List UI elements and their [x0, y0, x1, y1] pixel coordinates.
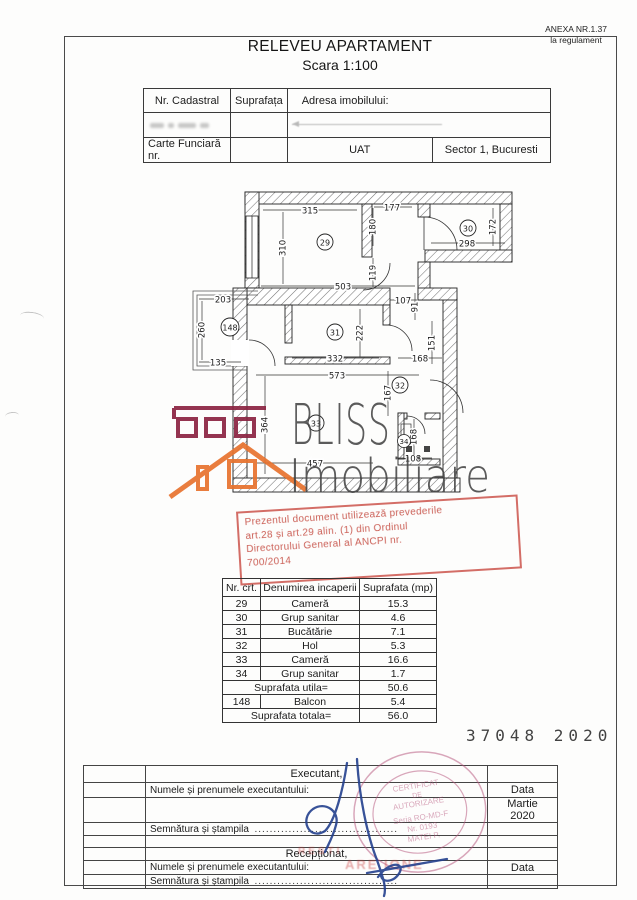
- suprafata-value-cell: [231, 113, 288, 138]
- watermark-bliss: BLISS: [291, 398, 391, 454]
- room-nr: 32: [223, 639, 261, 653]
- page-title: RELEVEU APARTAMENT: [64, 38, 616, 56]
- svg-text:573: 573: [329, 372, 345, 382]
- total-label: Suprafata totala=: [223, 709, 360, 723]
- room-name: Grup sanitar: [261, 667, 360, 681]
- util-value: 50.6: [360, 681, 437, 695]
- scan-speck: [19, 310, 44, 323]
- room-name: Balcon: [261, 695, 360, 709]
- svg-text:315: 315: [302, 207, 318, 217]
- empty-cell: [84, 766, 146, 783]
- table-row: 32Hol5.3: [223, 639, 437, 653]
- header-nr-cadastral: Nr. Cadastral: [144, 89, 231, 113]
- header-suprafata: Suprafața: [231, 89, 288, 113]
- svg-text:168: 168: [412, 355, 428, 365]
- svg-text:107: 107: [395, 297, 411, 307]
- address-redacted-mark: [292, 121, 442, 129]
- svg-text:31: 31: [330, 329, 340, 338]
- logo-house-windows: [174, 408, 266, 436]
- svg-text:260: 260: [198, 322, 208, 338]
- empty-cell: [84, 798, 146, 823]
- room-area: 1.7: [360, 667, 437, 681]
- subtotal-row: Suprafata utila=50.6: [223, 681, 437, 695]
- svg-text:151: 151: [428, 335, 438, 351]
- signature-label-text: Semnătura și ștampila: [150, 876, 249, 887]
- table-row: 34Grup sanitar1.7: [223, 667, 437, 681]
- util-label: Suprafata utila=: [223, 681, 360, 695]
- table-row: 30Grup sanitar4.6: [223, 611, 437, 625]
- svg-text:177: 177: [384, 204, 400, 214]
- address-redacted: [287, 113, 550, 138]
- room-area: 4.6: [360, 611, 437, 625]
- info-table: Nr. Cadastral Suprafața Adresa imobilulu…: [143, 88, 551, 163]
- svg-text:172: 172: [489, 219, 499, 235]
- svg-text:203: 203: [215, 296, 231, 306]
- empty-cell: [84, 848, 146, 861]
- svg-text:310: 310: [279, 240, 289, 256]
- room-name: Cameră: [261, 597, 360, 611]
- uat-label: UAT: [287, 138, 432, 163]
- logo-roof: [170, 445, 306, 497]
- svg-text:91: 91: [411, 302, 421, 313]
- signature-label-text: Semnătura și ștampila: [150, 824, 249, 835]
- empty-cell: [84, 861, 146, 875]
- cadastral-number-redacted: [144, 113, 231, 138]
- document-page: ANEXA NR.1.37 la regulament RELEVEU APAR…: [0, 0, 637, 900]
- handwritten-signature: [295, 755, 465, 900]
- room-nr: 29: [223, 597, 261, 611]
- room-nr: 148: [223, 695, 261, 709]
- room-area: 5.4: [360, 695, 437, 709]
- room-area: 5.3: [360, 639, 437, 653]
- svg-text:332: 332: [327, 355, 343, 365]
- col-nr-crt: Nr. crt.: [223, 579, 261, 597]
- empty-cell: [84, 875, 146, 889]
- room-nr: 33: [223, 653, 261, 667]
- room-nr: 30: [223, 611, 261, 625]
- svg-text:32: 32: [395, 382, 405, 391]
- table-row: 29Cameră15.3: [223, 597, 437, 611]
- svg-text:168: 168: [410, 429, 420, 445]
- sector-label: Sector 1, Bucuresti: [432, 138, 550, 163]
- col-denumire: Denumirea incaperii: [261, 579, 360, 597]
- room-area: 15.3: [360, 597, 437, 611]
- table-row: 33Cameră16.6: [223, 653, 437, 667]
- empty-cell: [84, 783, 146, 798]
- svg-text:34: 34: [400, 438, 409, 446]
- svg-text:148: 148: [222, 324, 237, 333]
- svg-text:135: 135: [210, 359, 226, 369]
- room-area: 7.1: [360, 625, 437, 639]
- room-areas-table: Nr. crt. Denumirea incaperii Suprafata (…: [222, 578, 437, 723]
- carte-funciara-label: Carte Funciară nr.: [144, 138, 231, 163]
- room-nr: 31: [223, 625, 261, 639]
- table-row: 148Balcon5.4: [223, 695, 437, 709]
- svg-text:180: 180: [369, 219, 379, 235]
- watermark-imobiliare: Imobiliare: [289, 453, 490, 499]
- empty-cell: [488, 875, 558, 889]
- room-name: Hol: [261, 639, 360, 653]
- room-name: Grup sanitar: [261, 611, 360, 625]
- svg-text:503: 503: [335, 283, 351, 293]
- svg-text:298: 298: [459, 240, 475, 250]
- total-value: 56.0: [360, 709, 437, 723]
- col-suprafata: Suprafata (mp): [360, 579, 437, 597]
- page-subtitle: Scara 1:100: [64, 57, 616, 73]
- svg-text:30: 30: [463, 225, 473, 234]
- header-adresa: Adresa imobilului:: [287, 89, 550, 113]
- scan-speck: [5, 411, 20, 420]
- empty-cell: [84, 836, 146, 848]
- room-name: Bucătărie: [261, 625, 360, 639]
- svg-text:119: 119: [369, 265, 379, 281]
- carte-funciara-value-cell: [231, 138, 288, 163]
- total-row: Suprafata totala=56.0: [223, 709, 437, 723]
- empty-cell: [84, 823, 146, 836]
- table-row: 31Bucătărie7.1: [223, 625, 437, 639]
- room-area: 16.6: [360, 653, 437, 667]
- window: [246, 216, 258, 278]
- svg-text:29: 29: [320, 239, 330, 248]
- room-name: Cameră: [261, 653, 360, 667]
- room-nr: 34: [223, 667, 261, 681]
- empty-cell: [488, 766, 558, 783]
- svg-text:222: 222: [356, 325, 366, 341]
- anexa-line1: ANEXA NR.1.37: [545, 24, 607, 35]
